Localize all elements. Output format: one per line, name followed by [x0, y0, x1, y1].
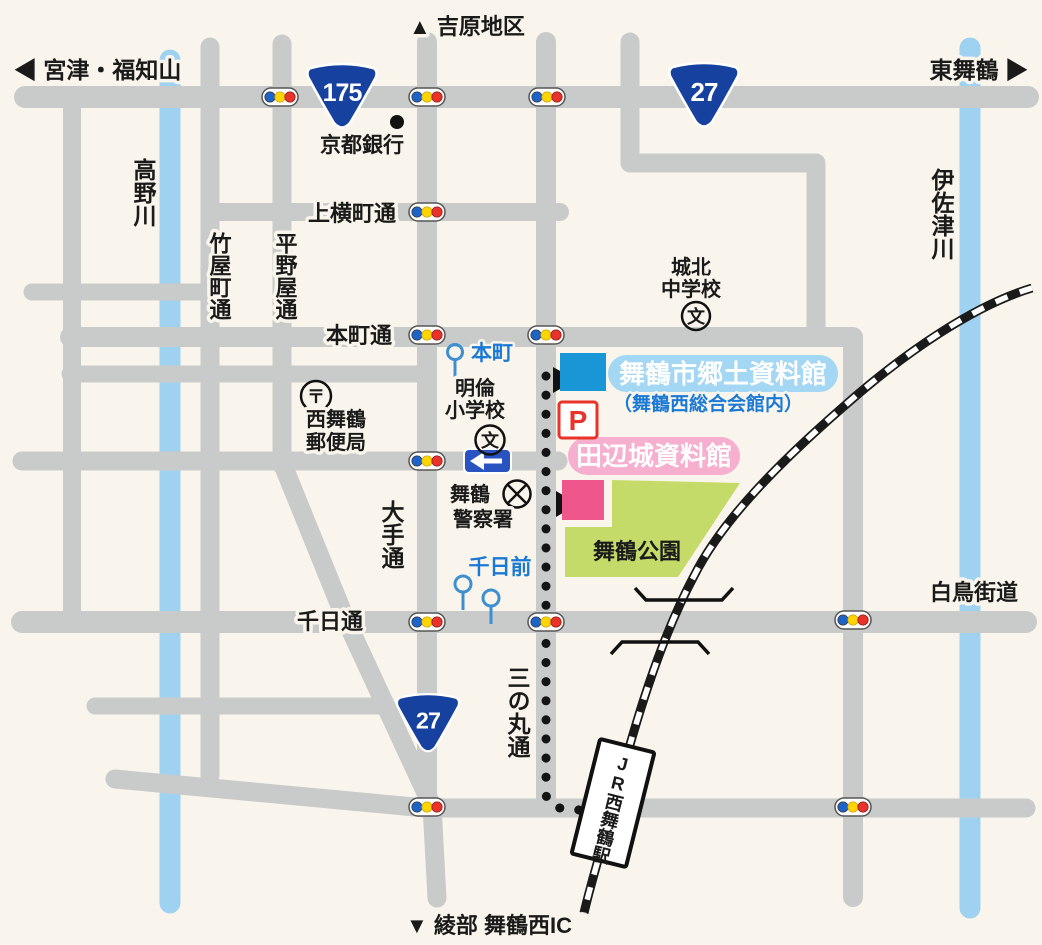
traffic-light-icon: [835, 798, 871, 816]
traffic-light-icon: [835, 611, 871, 629]
street-ote-label: 大手通: [378, 500, 405, 570]
one-way-sign-icon: [464, 449, 511, 473]
johoku-school-label-line1: 城北: [671, 255, 711, 279]
traffic-light-icon: [409, 613, 445, 631]
traffic-light-icon: [528, 326, 564, 344]
route-175-number: 175: [323, 79, 363, 107]
kyoto-bank-label: 京都銀行: [320, 133, 404, 157]
takano-river-label: 高野川: [130, 157, 157, 227]
kyoto-bank-dot: [390, 115, 404, 129]
street-takeyacho-label: 竹屋町通: [207, 231, 233, 320]
tanabe-museum-label: 田辺城資料館: [576, 441, 732, 471]
access-map: JR西舞鶴駅 舞鶴市郷土資料館 （舞鶴西総合会館内） 田辺城資料館 P 本町 千…: [0, 0, 1042, 945]
school-symbol: 文: [687, 306, 706, 327]
post-office-label-line1: 西舞鶴: [306, 407, 366, 431]
police-label-line1: 舞鶴: [450, 482, 490, 506]
maizuru-park-label: 舞鶴公園: [593, 539, 681, 564]
school-symbol: 文: [481, 430, 500, 451]
route-27-number-bottom: 27: [416, 707, 440, 733]
street-hiranoya-label: 平野屋通: [273, 232, 298, 320]
traffic-light-icon: [409, 88, 445, 106]
post-office-label-line2: 郵便局: [306, 431, 366, 454]
isazu-river-label: 伊佐津川: [928, 167, 956, 260]
meirin-school-label-line2: 小学校: [445, 398, 506, 422]
johoku-school-label-line2: 中学校: [661, 277, 722, 301]
traffic-light-icon: [528, 613, 564, 631]
direction-north-label: ▲ 吉原地区: [409, 14, 525, 39]
traffic-light-icon: [262, 88, 298, 106]
post-symbol: 〒: [307, 387, 325, 407]
tanabe-museum-building: [562, 480, 604, 520]
street-kamiyokocho-label: 上横町通: [308, 201, 396, 226]
parking-icon: P: [559, 402, 597, 438]
street-sennichi-label: 千日通: [297, 609, 363, 634]
kyodo-museum-building: [560, 353, 606, 391]
police-label-line2: 警察署: [453, 507, 513, 531]
street-shiratori-label: 白鳥街道: [930, 580, 1018, 605]
traffic-light-icon: [409, 203, 445, 221]
route-27-number-top: 27: [691, 77, 718, 107]
kyodo-museum-label: 舞鶴市郷土資料館: [619, 359, 827, 389]
kyodo-museum-note: （舞鶴西総合会館内）: [613, 392, 803, 415]
traffic-light-icon: [409, 452, 445, 470]
traffic-light-icon: [409, 326, 445, 344]
tram-stop-honmachi-label: 本町: [471, 342, 513, 365]
street-sannomaru-label: 三の丸通: [504, 666, 532, 759]
meirin-school-label-line1: 明倫: [455, 376, 496, 400]
traffic-light-icon: [529, 88, 565, 106]
traffic-light-icon: [409, 798, 445, 816]
direction-west-label: ◀ 宮津・福知山: [14, 57, 181, 83]
direction-south-label: ▼ 綾部 舞鶴西IC: [406, 913, 572, 938]
map-canvas: JR西舞鶴駅 舞鶴市郷土資料館 （舞鶴西総合会館内） 田辺城資料館 P 本町 千…: [0, 0, 1042, 945]
direction-east-label: 東舞鶴 ▶: [930, 57, 1028, 83]
tram-stop-sennichimae-label: 千日前: [469, 555, 532, 579]
parking-label: P: [569, 405, 588, 436]
street-honmachi-label: 本町通: [326, 323, 392, 348]
